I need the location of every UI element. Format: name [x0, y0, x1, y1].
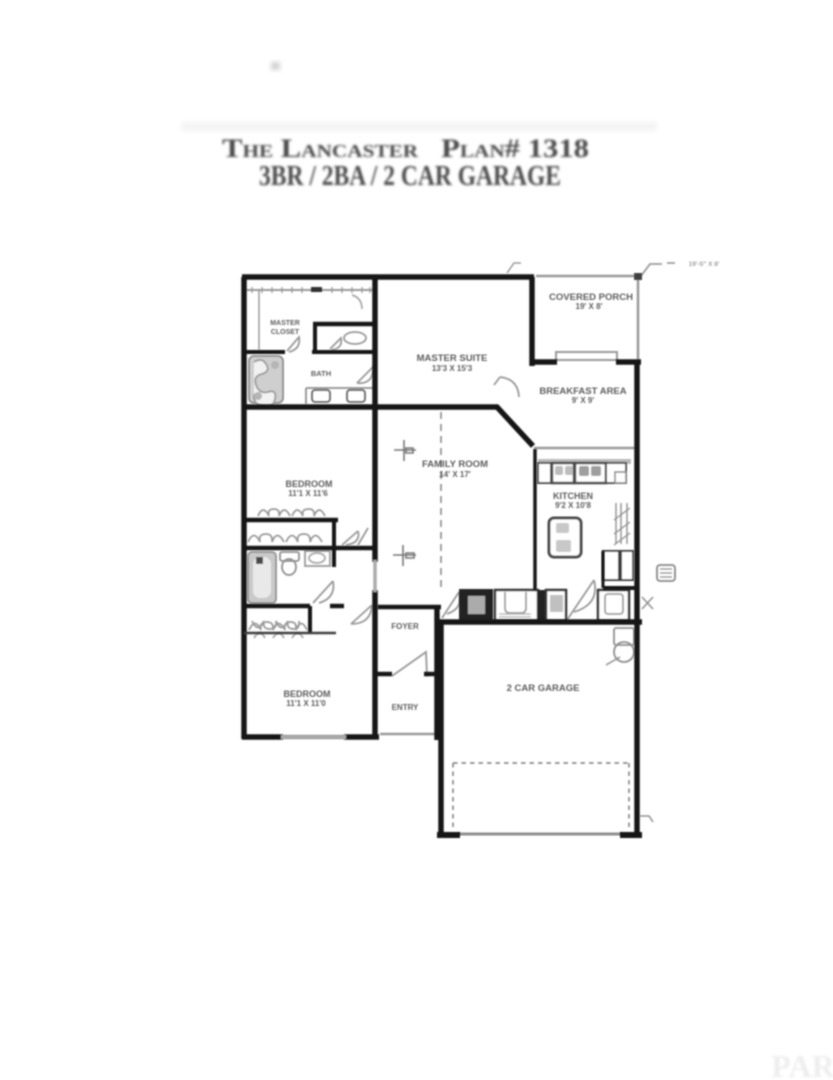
svg-text:9' X 9': 9' X 9'	[572, 396, 595, 405]
svg-text:FOYER: FOYER	[391, 622, 419, 631]
svg-text:KITCHEN: KITCHEN	[553, 491, 593, 501]
svg-text:MASTER SUITE: MASTER SUITE	[417, 353, 488, 364]
svg-text:13'3 X 15'3: 13'3 X 15'3	[432, 364, 473, 373]
svg-text:FAMILY ROOM: FAMILY ROOM	[422, 459, 488, 470]
svg-text:11'1 X 11'6: 11'1 X 11'6	[288, 489, 328, 498]
svg-text:9'2 X 10'8: 9'2 X 10'8	[555, 501, 591, 510]
svg-text:14' X 17': 14' X 17'	[439, 470, 470, 479]
svg-text:BEDROOM: BEDROOM	[284, 689, 331, 699]
svg-text:BEDROOM: BEDROOM	[286, 479, 333, 489]
svg-text:The Lancaster Plan# 1318: The Lancaster Plan# 1318	[222, 134, 589, 163]
svg-text:19' X 8': 19' X 8'	[576, 302, 603, 311]
svg-text:11'1 X 11'0: 11'1 X 11'0	[286, 699, 326, 708]
svg-text:2 CAR GARAGE: 2 CAR GARAGE	[507, 683, 580, 694]
svg-text:ENTRY: ENTRY	[392, 703, 419, 712]
svg-text:19'-5" X 8': 19'-5" X 8'	[689, 261, 720, 268]
svg-text:3BR / 2BA / 2 CAR GARAGE: 3BR / 2BA / 2 CAR GARAGE	[259, 161, 561, 192]
svg-text:CLOSET: CLOSET	[271, 329, 300, 336]
svg-text:BATH: BATH	[311, 369, 331, 378]
svg-text:MASTER: MASTER	[270, 320, 300, 327]
svg-text:PAR: PAR	[771, 1048, 833, 1080]
